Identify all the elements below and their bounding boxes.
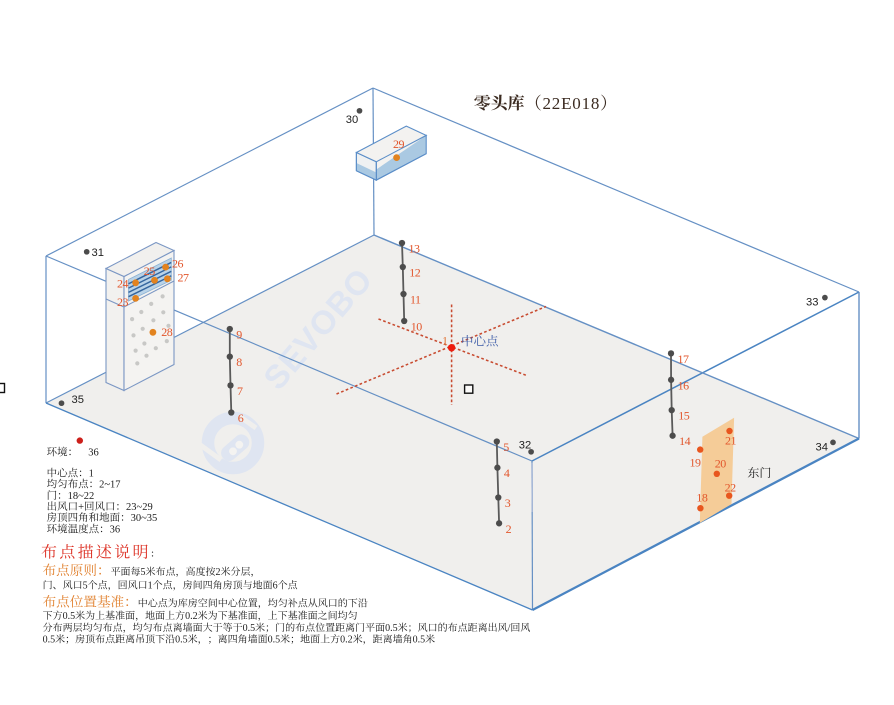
svg-text:7: 7 — [237, 382, 243, 399]
svg-text:29: 29 — [393, 135, 405, 152]
svg-text:9: 9 — [236, 326, 242, 343]
svg-text:23: 23 — [117, 293, 129, 310]
svg-text:24: 24 — [117, 275, 129, 292]
svg-text:10: 10 — [411, 318, 423, 335]
svg-text:31: 31 — [92, 247, 104, 259]
svg-text:30: 30 — [346, 114, 358, 126]
svg-text:门、风口5个点，回风口1个点，房间四角房顶与地面6个点: 门、风口5个点，回风口1个点，房间四角房顶与地面6个点 — [43, 577, 299, 592]
svg-text:17: 17 — [678, 350, 690, 367]
svg-text:4: 4 — [504, 464, 510, 481]
svg-text:5: 5 — [503, 438, 509, 455]
svg-text:东门: 东门 — [747, 464, 771, 481]
svg-text::: : — [151, 548, 154, 560]
svg-text:18: 18 — [696, 489, 708, 506]
svg-text:35: 35 — [72, 394, 84, 406]
svg-text:27: 27 — [178, 268, 190, 285]
svg-text:19: 19 — [690, 454, 702, 471]
svg-text:21: 21 — [725, 432, 737, 449]
svg-text:1: 1 — [442, 332, 448, 349]
svg-text:14: 14 — [679, 432, 691, 449]
svg-text:33: 33 — [806, 297, 818, 309]
svg-text:32: 32 — [519, 440, 531, 452]
svg-text:0.5米；房顶布点距离吊顶下沿0.5米，；离四角墙面0.5米: 0.5米；房顶布点距离吊顶下沿0.5米，；离四角墙面0.5米；地面上方0.2米，… — [43, 631, 436, 646]
svg-text:2: 2 — [506, 520, 512, 537]
svg-text:12: 12 — [409, 264, 421, 281]
svg-text:25: 25 — [144, 262, 156, 279]
svg-text:11: 11 — [410, 291, 421, 308]
svg-text:28: 28 — [161, 323, 173, 340]
svg-text:零头库（22E018）: 零头库（22E018） — [474, 89, 618, 114]
svg-text:20: 20 — [715, 455, 727, 472]
svg-text:13: 13 — [409, 240, 421, 257]
svg-text:8: 8 — [236, 353, 242, 370]
svg-text:16: 16 — [678, 376, 690, 393]
svg-text:36: 36 — [88, 445, 99, 460]
svg-text:15: 15 — [678, 407, 690, 424]
svg-text:34: 34 — [816, 442, 828, 454]
svg-text:3: 3 — [505, 494, 511, 511]
svg-text:6: 6 — [238, 409, 244, 426]
svg-text:中心点: 中心点 — [461, 332, 499, 350]
svg-text:22: 22 — [725, 478, 737, 495]
svg-text:环境温度点：36: 环境温度点：36 — [47, 521, 121, 536]
svg-text:环境：: 环境： — [47, 445, 79, 460]
